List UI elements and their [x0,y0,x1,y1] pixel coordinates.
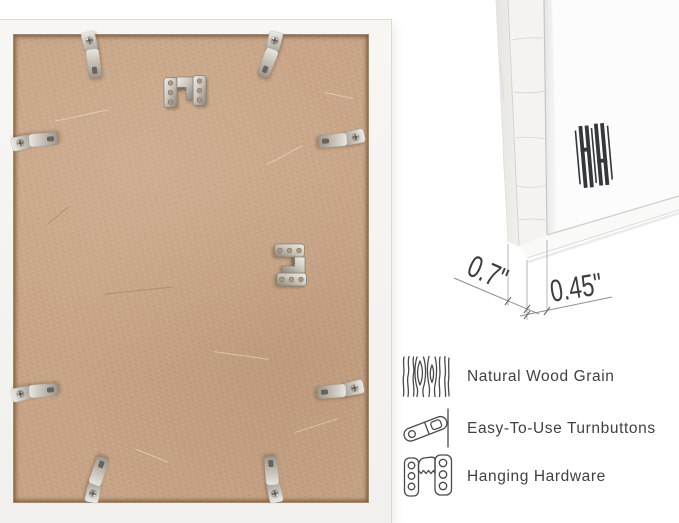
frame-back-photo [0,20,391,523]
sawtooth-hanger-portrait [163,74,211,114]
wood-grain-icon [401,354,451,398]
feature-label: Easy-To-Use Turnbuttons [467,419,656,439]
feature-label: Hanging Hardware [467,467,606,487]
corner-detail-photo: 0.7" 0.45" [440,0,679,332]
product-image: 0.7" 0.45" Natural Wood Grain [0,0,679,523]
hanging-hardware-icon [403,452,453,498]
feature-label: Natural Wood Grain [467,367,615,387]
turnbutton-icon [399,407,452,449]
depth-dimension-label: 0.7" [462,248,513,296]
face-dimension-label: 0.45" [548,266,605,309]
sawtooth-hanger-landscape [267,242,309,290]
